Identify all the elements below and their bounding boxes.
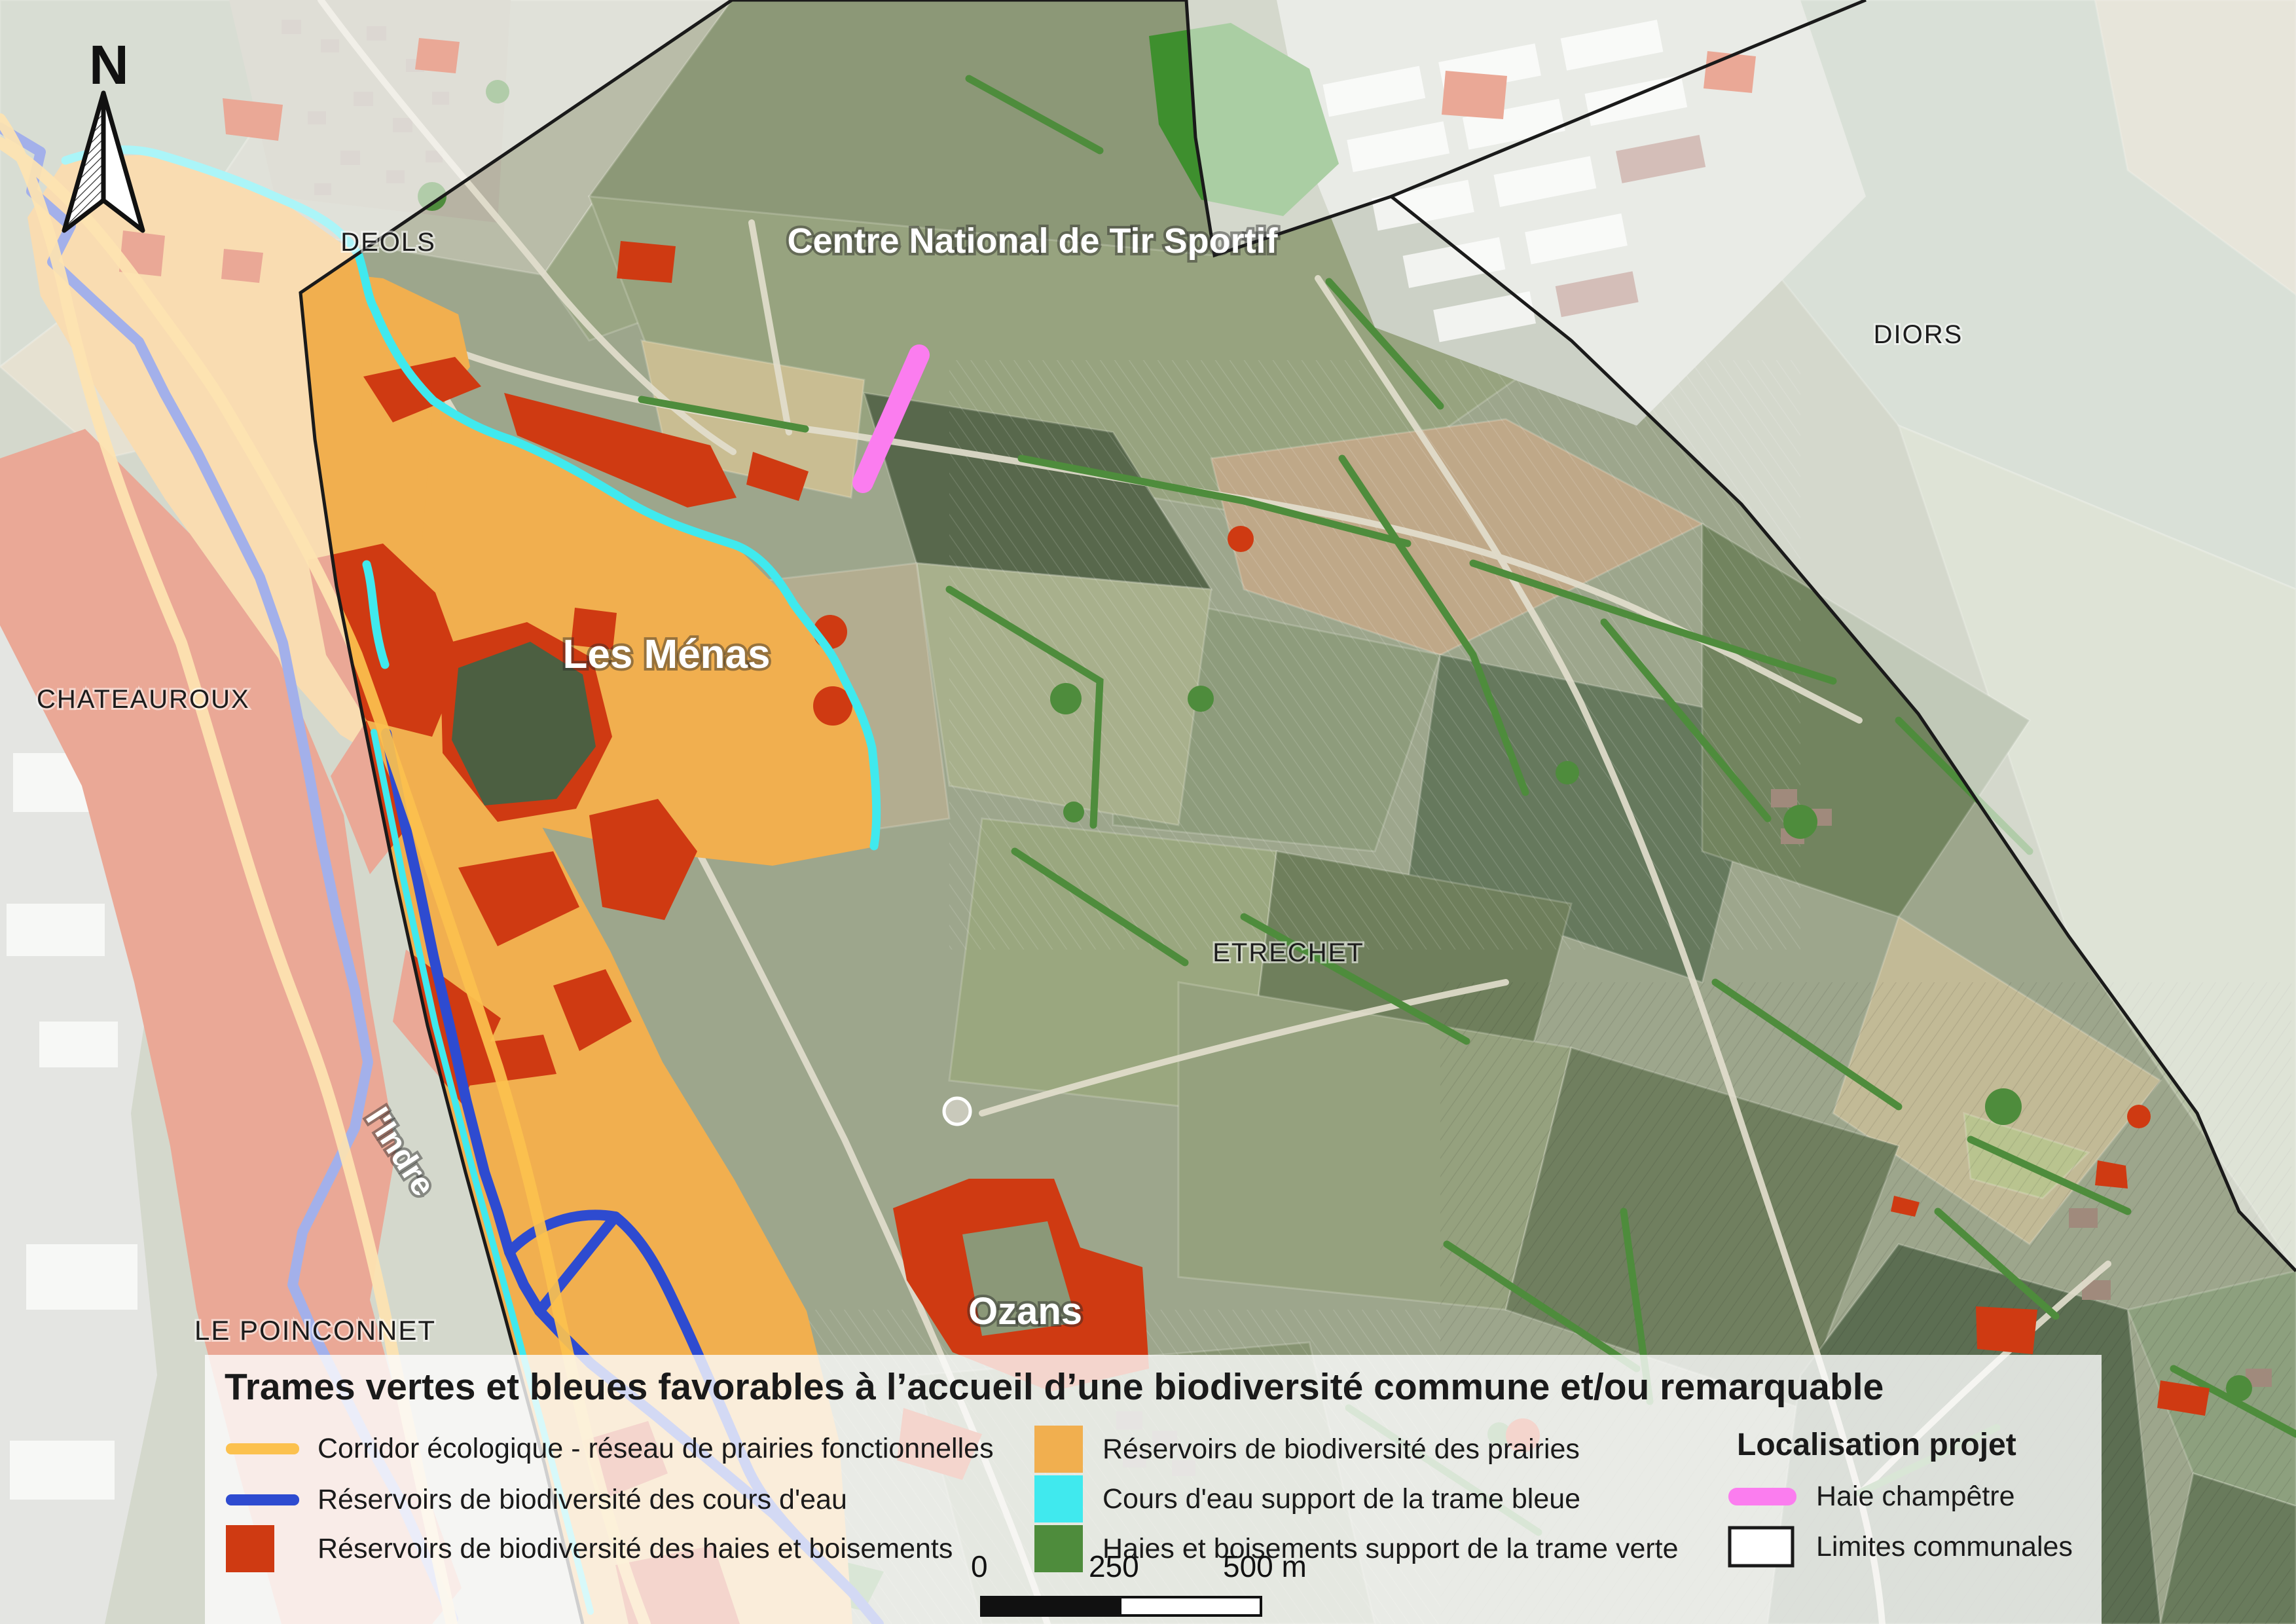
legend-title: Trames vertes et bleues favorables à l’a… (225, 1365, 1884, 1409)
place-label-deols: DEOLS (340, 228, 436, 257)
legend-item-corridor: Corridor écologique - réseau de prairies… (225, 1426, 994, 1471)
legend-item-prairies: Réservoirs de biodiversité des prairies (1033, 1424, 1580, 1474)
map-page: DEOLS DIORS CHATEAUROUX LE POINCONNET ET… (0, 0, 2296, 1624)
scalebar-bar (980, 1596, 1262, 1617)
place-label-diors: DIORS (1874, 320, 1963, 349)
legend-item-label: Réservoirs de biodiversité des haies et … (318, 1533, 953, 1565)
scalebar-start: 0 (971, 1549, 988, 1584)
legend-project-title: Localisation projet (1737, 1427, 2016, 1463)
legend-item-label: Réservoirs de biodiversité des prairies (1102, 1433, 1580, 1466)
scalebar-mid: 250 (1089, 1549, 1139, 1584)
red-square-swatch (225, 1524, 301, 1574)
place-label-centre-tir: Centre National de Tir Sportif (787, 221, 1278, 261)
cyan-square-swatch (1033, 1474, 1085, 1524)
place-label-ozans: Ozans (968, 1290, 1082, 1333)
legend-item-label: Haie champêtre (1816, 1481, 2015, 1513)
pink-line-swatch (1727, 1477, 1799, 1516)
legend-panel: Trames vertes et bleues favorables à l’a… (205, 1355, 2102, 1624)
place-label-etrechet: ETRECHET (1212, 938, 1364, 967)
place-label-chateauroux: CHATEAUROUX (37, 685, 250, 714)
legend-item-limites: Limites communales (1727, 1525, 2073, 1568)
legend-item-haie-champetre: Haie champêtre (1727, 1477, 2015, 1516)
legend-item-trame-bleue: Cours d'eau support de la trame bleue (1033, 1474, 1580, 1524)
legend-item-label: Limites communales (1816, 1531, 2073, 1563)
legend-item-label: Cours d'eau support de la trame bleue (1102, 1483, 1580, 1515)
river-line-swatch (225, 1477, 301, 1522)
place-label-les-menas: Les Ménas (562, 632, 770, 677)
boundary-rect-swatch (1727, 1525, 1799, 1568)
scalebar: 0 250 500 m (958, 1549, 1324, 1621)
corridor-line-swatch (225, 1426, 301, 1471)
legend-item-label: Corridor écologique - réseau de prairies… (318, 1433, 994, 1465)
legend-item-cours-eau: Réservoirs de biodiversité des haies et … (225, 1477, 847, 1522)
orange-square-swatch (1033, 1424, 1085, 1474)
legend-item-label: Réservoirs de biodiversité des cours d'e… (318, 1484, 847, 1516)
legend-item-haies: Réservoirs de biodiversité des haies et … (225, 1524, 953, 1574)
place-label-le-poinconnet: LE POINCONNET (194, 1315, 436, 1346)
scalebar-end: 500 m (1223, 1549, 1307, 1584)
roundabout-2 (944, 1098, 970, 1124)
north-arrow-label: N (89, 34, 129, 96)
